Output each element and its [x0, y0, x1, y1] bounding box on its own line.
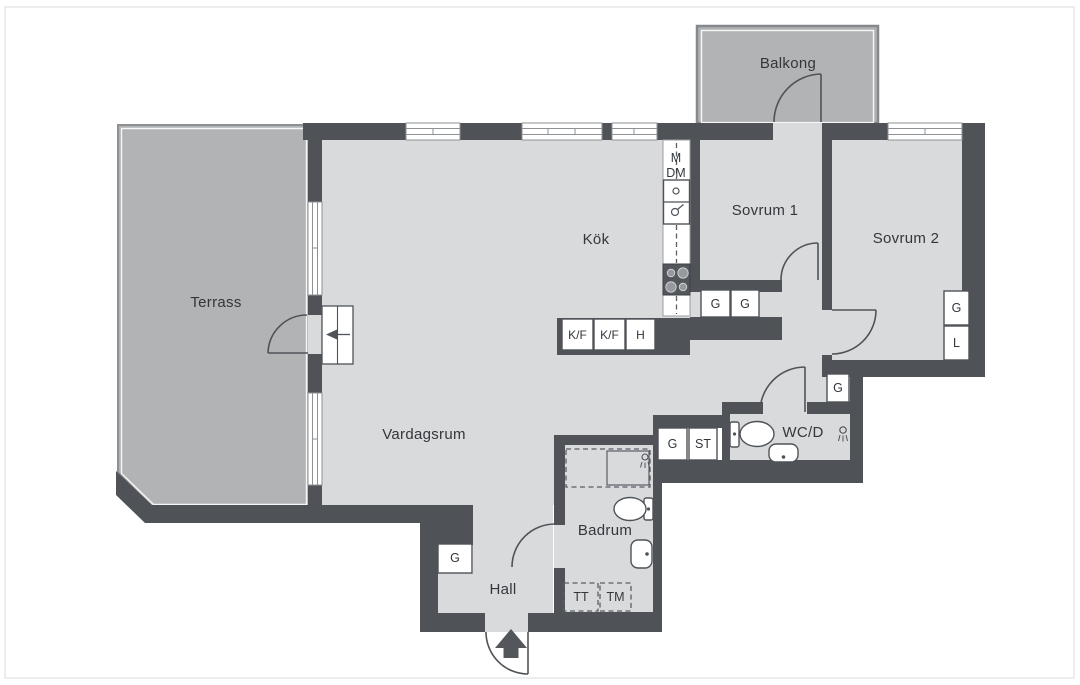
- window: [888, 123, 962, 140]
- toilet-icon: [614, 498, 653, 521]
- room-label-sovrum1: Sovrum 1: [732, 202, 799, 219]
- wardrobe-g-label: G: [833, 381, 843, 395]
- dishwasher-label: DM: [666, 166, 685, 180]
- terrace-area: [118, 125, 310, 508]
- entry-arrow-icon: [495, 629, 527, 658]
- sink-icon: [631, 540, 652, 568]
- cabinet-h-label: H: [636, 328, 645, 342]
- dryer-tt-label: TT: [573, 590, 589, 604]
- room-label-hall: Hall: [489, 581, 516, 598]
- window: [612, 123, 657, 140]
- wardrobe-g-label: G: [740, 297, 750, 311]
- room-label-kok: Kök: [583, 231, 610, 248]
- room-label-balkong: Balkong: [760, 55, 816, 72]
- room-label-wcd: WC/D: [782, 424, 823, 441]
- balcony-area: [697, 26, 878, 123]
- sink-icon: [769, 444, 798, 462]
- wardrobe-g-label: G: [668, 437, 678, 451]
- fridge-freezer-label: K/F: [568, 328, 587, 342]
- kitchen-sink-icon: [664, 180, 690, 224]
- terrace-door-panel: [322, 306, 353, 364]
- toilet-icon: [730, 422, 774, 448]
- wardrobe-g-label: G: [711, 297, 721, 311]
- wardrobe-g-label: G: [952, 301, 962, 315]
- floorplan-page: Terrass Balkong Kök Sovrum 1 Sovrum 2 Va…: [0, 0, 1080, 685]
- window: [308, 393, 322, 485]
- wardrobe-g-label: G: [450, 551, 460, 565]
- stove-icon: [663, 264, 690, 295]
- linen-l-label: L: [953, 336, 960, 350]
- floorplan-drawing: Terrass Balkong Kök Sovrum 1 Sovrum 2 Va…: [0, 0, 1080, 685]
- window: [308, 202, 322, 295]
- room-label-sovrum2: Sovrum 2: [873, 230, 940, 247]
- microwave-label: M: [671, 151, 681, 165]
- washer-tm-label: TM: [606, 590, 624, 604]
- fridge-freezer-label: K/F: [600, 328, 619, 342]
- window: [522, 123, 602, 140]
- room-label-vardagsrum: Vardagsrum: [382, 426, 466, 443]
- room-label-badrum: Badrum: [578, 522, 632, 539]
- room-label-terrass: Terrass: [190, 294, 241, 311]
- window: [406, 123, 460, 140]
- cleaning-st-label: ST: [695, 437, 711, 451]
